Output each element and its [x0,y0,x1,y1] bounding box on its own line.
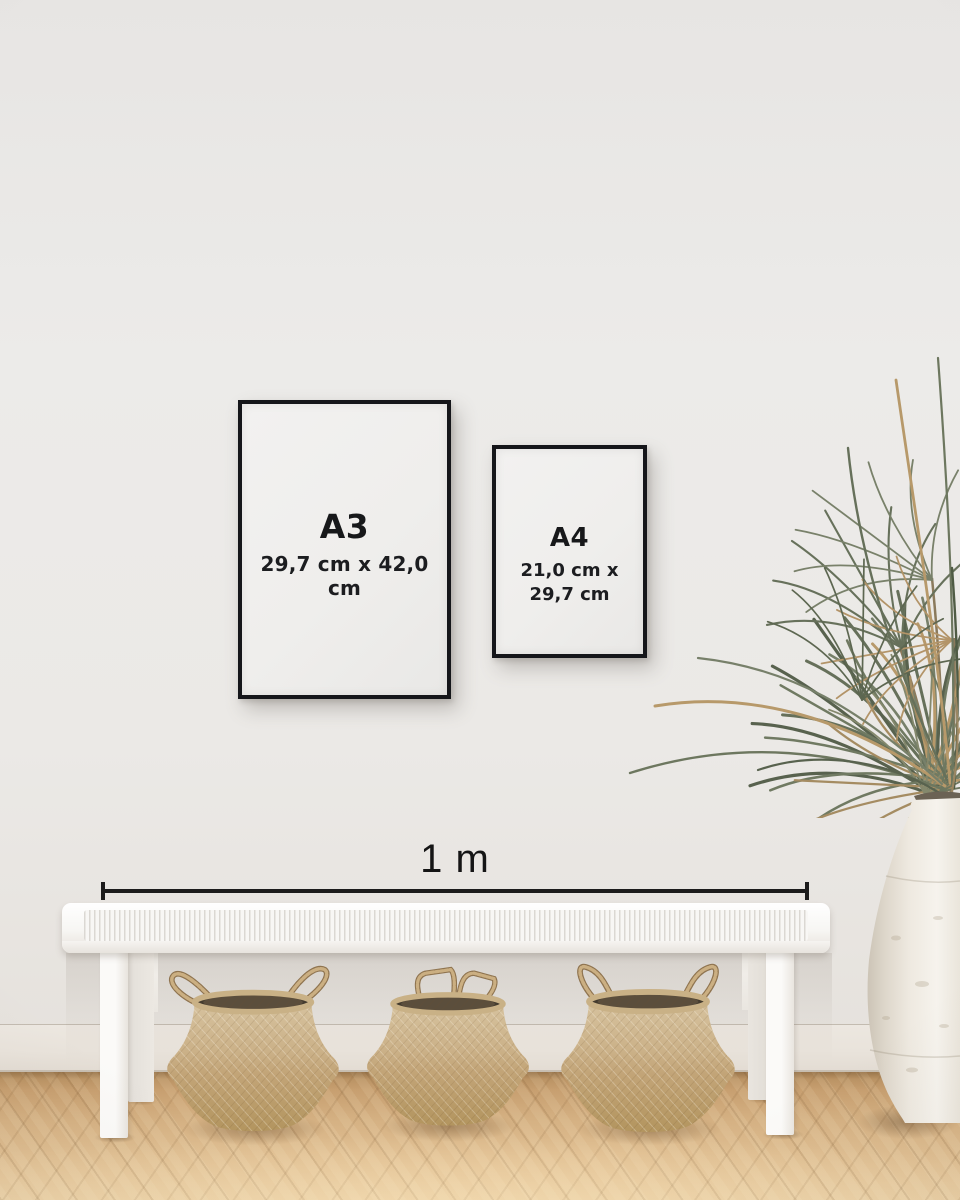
basket-body [367,1004,529,1126]
bench-leg-left-front [100,950,128,1138]
a3-text-block: A3 29,7 cm x 42,0 cm [242,510,447,600]
bench-leg-right-front [766,950,794,1135]
a3-frame: A3 29,7 cm x 42,0 cm [238,400,451,699]
basket-body [561,1002,734,1132]
scale-tick-right [805,882,809,900]
scale-label: 1 m [355,837,555,882]
palm-plant [600,318,960,818]
scale-tick-left [101,882,105,900]
plant-fronds [630,358,960,818]
vase [856,788,960,1133]
basket-body [167,1002,339,1131]
a4-size-line2: 29,7 cm [529,584,609,605]
a3-size: 29,7 cm x 42,0 cm [242,552,447,600]
bench-leg-left-back [128,950,154,1102]
a4-label: A4 [550,525,589,551]
basket-right [556,961,740,1140]
a3-label: A3 [320,510,370,543]
scale-line [103,889,807,893]
basket-center [362,966,534,1133]
room-scene: 1 m A3 29,7 cm x 42,0 cm A4 21,0 cm x 29… [0,0,960,1200]
bench-seat [62,903,830,953]
basket-left [162,962,344,1139]
vase-body [868,798,960,1123]
a3-paper: A3 29,7 cm x 42,0 cm [242,404,447,695]
